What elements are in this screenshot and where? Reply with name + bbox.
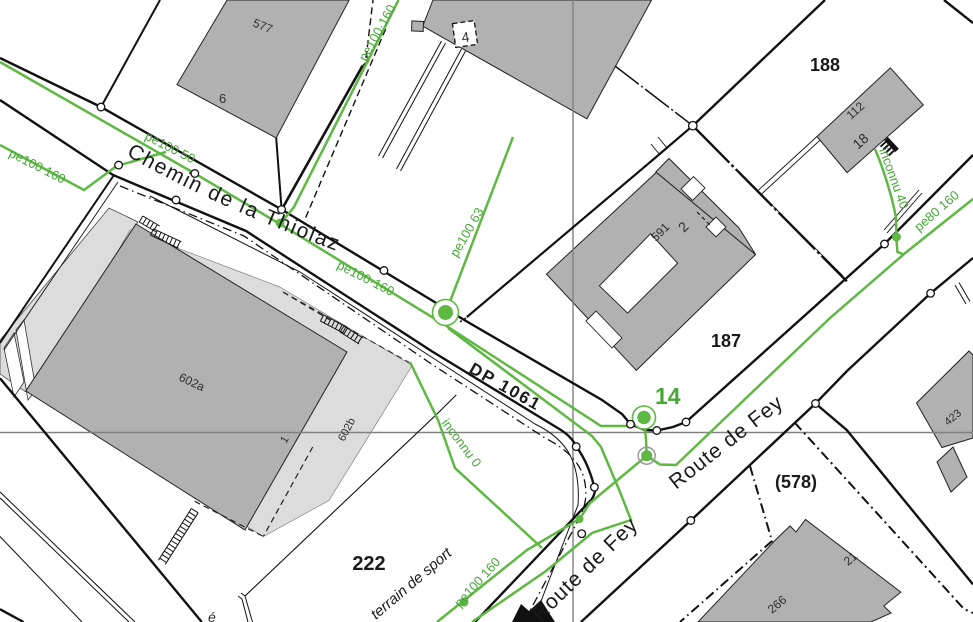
svg-text:(578): (578): [775, 472, 817, 492]
svg-text:6: 6: [219, 91, 226, 106]
svg-text:187: 187: [711, 331, 741, 351]
svg-text:188: 188: [810, 55, 840, 75]
svg-text:222: 222: [352, 553, 385, 575]
svg-text:14: 14: [655, 383, 681, 409]
svg-text:é: é: [208, 609, 216, 622]
